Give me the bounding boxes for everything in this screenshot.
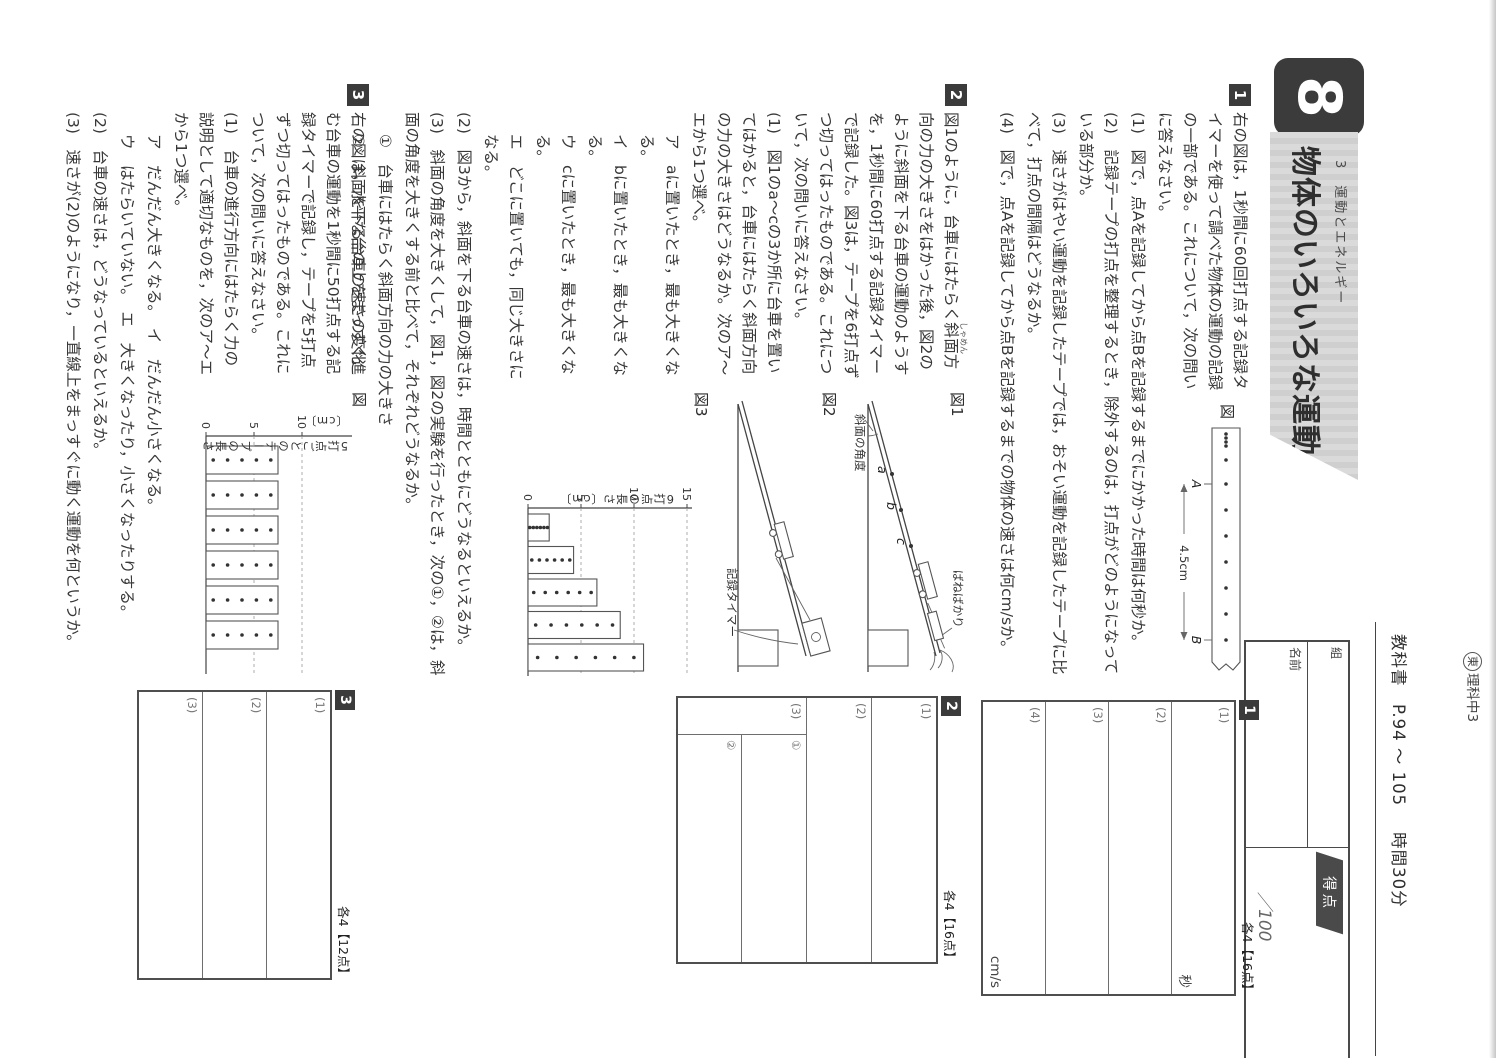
class-label: 組: [1328, 647, 1345, 659]
unit-seconds: 秒: [1176, 975, 1196, 989]
mark-b: b: [884, 502, 899, 510]
textbook-pages: 教科書 P.94 〜 105: [1389, 634, 1408, 806]
problem-1-q3: (3) 速さがはやい運動を記録したテープでは，おそい運動を記録したテープに比べて…: [1021, 112, 1071, 680]
svg-text:15: 15: [680, 487, 693, 501]
answer-table-2: 2 各4【16点】 (1) (2) (3) ① ②: [676, 696, 962, 964]
header-rule: [1375, 622, 1376, 1056]
answer-cell-2-2: (2): [807, 698, 872, 962]
tape-line: [776, 558, 810, 620]
problem-2-badge: 2: [945, 84, 967, 106]
score-badge: 得点: [1316, 852, 1343, 935]
fig2-label: 図2: [820, 392, 838, 417]
answer-2-points: 各4【16点】: [942, 890, 961, 964]
problem-3-badge: 3: [347, 84, 369, 106]
svg-text:0: 0: [521, 494, 534, 501]
page-title: 物体のいろいろな運動: [1286, 146, 1330, 456]
unit-cm-per-s: cm/s: [987, 956, 1003, 988]
incline-timer-diagram: 図2 記録タイマー: [726, 390, 840, 680]
problem-1-q1: (1) 図で，点Aを記録してから点Bを記録するまでにかかった時間は何秒か。: [1125, 112, 1150, 680]
scanned-worksheet: 東理科中3 教科書 P.94 〜 105時間30分 8 3 運動とエネルギー 物…: [0, 0, 1496, 1058]
time-limit: 時間30分: [1389, 832, 1408, 908]
publisher-tag: 東理科中3: [1463, 652, 1484, 812]
fig1-label: 図1: [948, 392, 966, 417]
answer-table-1: 1 各4【16点】 (1) 秒 (2) (3) (4) cm/s: [981, 700, 1260, 996]
answer-1-badge: 1: [1239, 700, 1259, 720]
answer-3-badge: 3: [335, 690, 355, 710]
mark-a: a: [875, 466, 890, 474]
problem-3-choices-line2: ウ はたらいていない。 エ 大きくなったり，小さくなったりする。: [114, 134, 139, 680]
problem-1-badge: 1: [1229, 84, 1251, 106]
spring-scale-label: ばねばかり: [951, 570, 965, 628]
incline-spring-scale-diagram: 図1 ばねばかり 斜面の角度 a b c: [854, 390, 968, 680]
publisher-tag-text: 理科中3: [1464, 673, 1480, 722]
answer-cell-3-2: (2): [203, 692, 267, 978]
recording-timer-label: 記録タイマー: [726, 568, 739, 637]
answer-2-badge: 2: [941, 696, 961, 716]
answer-cell-3-1: (1): [267, 692, 330, 978]
problem-1: 1 図 A B: [992, 84, 1252, 680]
point-b-label: B: [1189, 636, 1204, 645]
answer-cell-2-1: (1): [872, 698, 936, 962]
answer-cell-2-3-1: ①: [743, 735, 807, 962]
answer-3-points: 各4【12点】: [336, 906, 355, 980]
tape-diagram: 図 A B: [1174, 404, 1252, 680]
point-a-label: A: [1189, 479, 1204, 489]
figure-2-block: 図2 記録タイマー: [718, 390, 840, 680]
answer-cell-2-3: (3) ① ②: [678, 698, 807, 962]
figure-3-block: 図3 051015 6打点の長さ〔cm〕: [508, 390, 712, 680]
hand: [930, 650, 953, 672]
answer-cell-3-3: (3): [139, 692, 203, 978]
answer-cell-1-1: (1) 秒: [1172, 702, 1234, 994]
answer-cell-2-3-2: ②: [678, 735, 743, 962]
problem-3-q2: (2) 台車の速さは，どうなっているといえるか。: [87, 112, 112, 680]
fig3-y-axis-label: 6打点の長さ〔cm〕: [559, 486, 674, 511]
fig3-label: 図3: [692, 392, 710, 417]
distance-label: 4.5cm: [1177, 545, 1191, 581]
figure-tape: 図 A B: [1166, 404, 1252, 680]
problem-2-q3-sub1: ① 台車にはたらく斜面方向の力の大きさ: [372, 134, 397, 680]
problem-3-y-axis-label: 5打点ごとのテープの長さ〔cm〕: [184, 408, 348, 458]
publisher-circle-mark: 東: [1463, 652, 1482, 671]
problem-1-q4: (4) 図で，点Aを記録してから点Bを記録するまでの物体の速さは何cm/sか。: [994, 112, 1019, 680]
figure-label: 図: [1218, 404, 1236, 419]
answer-cell-1-4: (4) cm/s: [983, 702, 1046, 994]
problem-3-choices-line1: ア だんだん大きくなる。 イ だんだん小さくなる。: [141, 134, 166, 680]
problem-1-q2: (2) 記録テープの打点を整理するとき，除外するのは，打点がどのようになっている…: [1073, 112, 1123, 680]
recording-timer: [802, 618, 830, 656]
recording-tape: [1212, 428, 1240, 670]
problem-2-q3: (3) 斜面の角度を大きくして，図1，図2の実験を行ったとき，次の①，②は，斜面…: [399, 112, 449, 680]
figure-1-block: 図1 ばねばかり 斜面の角度 a b c: [846, 390, 968, 680]
name-label: 名前: [1287, 647, 1304, 671]
ruby-shamen: 斜面しゃめん: [942, 322, 960, 354]
title-banner: 3 運動とエネルギー 物体のいろいろな運動: [1270, 132, 1358, 480]
problem-3: 3 図 0510 5打点ごとのテープの長さ〔cm〕 右の図は，水平な台の上をまっ…: [58, 84, 370, 680]
problem-3-figure-block: 図 0510 5打点ごとのテープの長さ〔cm〕: [184, 390, 370, 680]
class-field: 組: [1308, 642, 1348, 847]
name-fields: 組 名前: [1246, 642, 1348, 848]
unit-number-badge: 8: [1274, 58, 1364, 136]
problem-3-figure-label: 図: [350, 392, 368, 407]
unit-category: 3 運動とエネルギー: [1332, 160, 1351, 305]
score-cell: 得点 ／100: [1246, 848, 1348, 1058]
problem-3-q3: (3) 速さが(2)のようになり，一直線上をまっすぐに動く運動を何というか。: [60, 112, 85, 680]
answer-cell-1-2: (2): [1109, 702, 1172, 994]
answer-table-3: 3 各4【12点】 (1) (2) (3): [137, 690, 356, 980]
problem-2: 2 図1 ばねばかり 斜面の角度 a: [343, 84, 968, 680]
slope-angle-label: 斜面の角度: [854, 414, 867, 472]
answer-1-points: 各4【16点】: [1240, 922, 1259, 996]
mark-c: c: [894, 538, 909, 545]
textbook-info-line: 教科書 P.94 〜 105時間30分: [1388, 634, 1412, 934]
answer-cell-1-3: (3): [1046, 702, 1109, 994]
worksheet-page: 東理科中3 教科書 P.94 〜 105時間30分 8 3 運動とエネルギー 物…: [0, 0, 1496, 1058]
tape-strip-chart-accelerating: 図3 051015: [516, 390, 712, 680]
problem-2-q2: (2) 図3から，斜面を下る台車の速さは，時間とともにどうなるといえるか。: [451, 112, 476, 680]
